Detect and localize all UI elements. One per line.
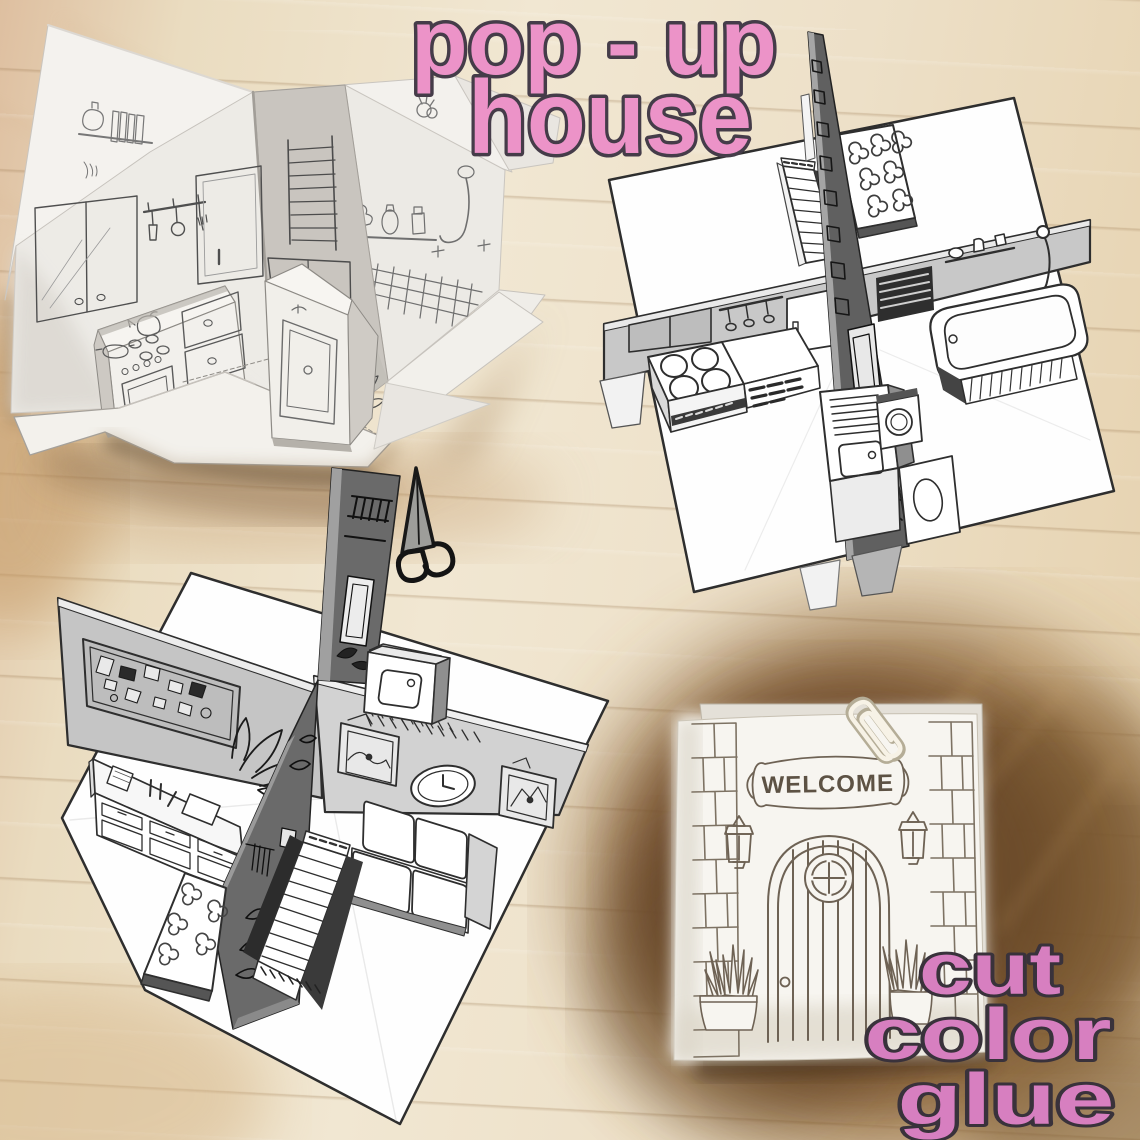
svg-text:glue: glue	[898, 1060, 1115, 1140]
svg-text:house: house	[468, 60, 752, 176]
svg-text:WELCOME: WELCOME	[761, 770, 894, 799]
